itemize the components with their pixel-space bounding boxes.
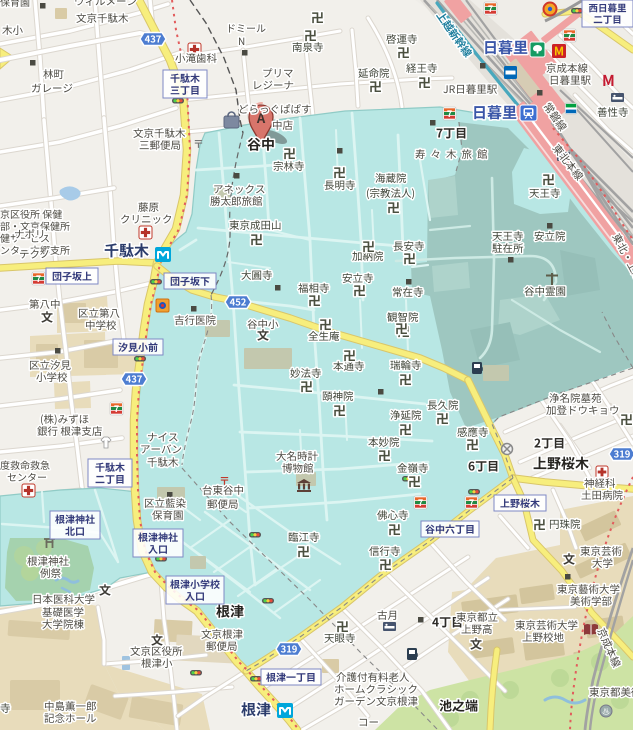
svg-text:319: 319 bbox=[614, 446, 631, 460]
svg-text:7: 7 bbox=[469, 496, 474, 509]
svg-text:三丁目: 三丁目 bbox=[170, 82, 200, 97]
svg-text:大学: 大学 bbox=[592, 556, 613, 571]
svg-text:円珠院: 円珠院 bbox=[549, 517, 581, 532]
svg-text:卍: 卍 bbox=[250, 229, 263, 248]
svg-text:レジーナ: レジーナ bbox=[252, 78, 294, 93]
svg-text:日暮里: 日暮里 bbox=[472, 102, 517, 123]
svg-text:クリニック: クリニック bbox=[120, 212, 173, 227]
svg-text:加登ドウキョウ: 加登ドウキョウ bbox=[546, 403, 620, 418]
svg-text:保育園: 保育園 bbox=[0, 0, 30, 9]
svg-text:台東谷中: 台東谷中 bbox=[202, 483, 244, 498]
svg-text:卍: 卍 bbox=[311, 7, 324, 26]
svg-text:卍: 卍 bbox=[418, 72, 431, 91]
svg-text:卍: 卍 bbox=[408, 471, 421, 490]
svg-text:谷中六丁目: 谷中六丁目 bbox=[425, 521, 475, 536]
svg-text:土田病院: 土田病院 bbox=[581, 488, 623, 503]
svg-text:卍: 卍 bbox=[333, 400, 346, 419]
svg-text:卍: 卍 bbox=[466, 434, 479, 453]
svg-text:卍: 卍 bbox=[395, 318, 408, 337]
svg-text:団子坂上: 団子坂上 bbox=[52, 268, 92, 283]
svg-text:卍: 卍 bbox=[387, 197, 400, 216]
svg-text:入口: 入口 bbox=[185, 588, 205, 603]
svg-text:卍: 卍 bbox=[533, 514, 546, 533]
svg-text:ガーデン文京根津: ガーデン文京根津 bbox=[334, 694, 418, 709]
svg-text:千駄木: 千駄木 bbox=[104, 240, 149, 261]
svg-text:大学院棟: 大学院棟 bbox=[42, 617, 84, 632]
svg-text:卍: 卍 bbox=[379, 554, 392, 573]
svg-text:入口: 入口 bbox=[148, 541, 168, 556]
svg-text:上野桜木: 上野桜木 bbox=[500, 495, 540, 510]
svg-text:古月: 古月 bbox=[377, 608, 398, 623]
svg-text:谷中: 谷中 bbox=[247, 134, 275, 154]
svg-text:文: 文 bbox=[99, 582, 111, 599]
svg-text:寿々木旅館: 寿々木旅館 bbox=[415, 147, 493, 162]
svg-text:日暮里駅: 日暮里駅 bbox=[549, 73, 591, 88]
svg-text:卍: 卍 bbox=[403, 248, 416, 267]
svg-text:安立院: 安立院 bbox=[534, 229, 566, 244]
svg-text:452: 452 bbox=[230, 294, 247, 308]
svg-text:卍: 卍 bbox=[399, 419, 412, 438]
svg-text:ナポリ: ナポリ bbox=[14, 227, 46, 242]
svg-text:二丁目: 二丁目 bbox=[95, 471, 125, 486]
svg-text:駐在所: 駐在所 bbox=[492, 241, 524, 256]
svg-text:小学校: 小学校 bbox=[36, 370, 68, 385]
svg-text:JR日暮里駅: JR日暮里駅 bbox=[443, 82, 498, 97]
svg-text:卍: 卍 bbox=[333, 162, 346, 181]
svg-text:どらっぐぱぱす: どらっぐぱぱす bbox=[238, 102, 312, 117]
svg-text:M: M bbox=[554, 43, 564, 60]
svg-text:文: 文 bbox=[257, 327, 269, 344]
svg-text:文: 文 bbox=[563, 551, 575, 568]
svg-text:2丁目: 2丁目 bbox=[534, 435, 565, 452]
svg-text:437: 437 bbox=[126, 371, 143, 385]
svg-text:卍: 卍 bbox=[620, 409, 633, 428]
svg-text:卍: 卍 bbox=[369, 76, 382, 95]
svg-text:卍: 卍 bbox=[336, 616, 349, 635]
svg-text:卍: 卍 bbox=[388, 519, 401, 538]
svg-text:汐見小前: 汐見小前 bbox=[118, 339, 158, 354]
svg-text:M: M bbox=[602, 70, 615, 91]
svg-text:海蔵院: 海蔵院 bbox=[375, 171, 407, 186]
svg-text:7: 7 bbox=[418, 496, 423, 509]
svg-text:木小: 木小 bbox=[2, 23, 23, 38]
svg-text:北口: 北口 bbox=[65, 523, 85, 538]
svg-text:ウィルメーン: ウィルメーン bbox=[74, 0, 137, 9]
svg-text:文京千駄木: 文京千駄木 bbox=[76, 11, 129, 26]
svg-text:千駄木: 千駄木 bbox=[147, 455, 179, 470]
svg-text:N: N bbox=[238, 33, 245, 48]
svg-text:郵便局: 郵便局 bbox=[207, 497, 239, 512]
svg-text:天王寺: 天王寺 bbox=[529, 186, 561, 201]
svg-text:保育園: 保育園 bbox=[152, 508, 184, 523]
svg-text:郵便局: 郵便局 bbox=[206, 639, 238, 654]
svg-text:437: 437 bbox=[145, 31, 162, 45]
svg-text:7: 7 bbox=[36, 272, 41, 285]
svg-text:大圓寺: 大圓寺 bbox=[241, 268, 273, 283]
svg-text:勝太郎旅館: 勝太郎旅館 bbox=[210, 194, 263, 209]
svg-text:例祭: 例祭 bbox=[40, 566, 61, 581]
svg-text:卍: 卍 bbox=[362, 236, 375, 255]
svg-text:卍: 卍 bbox=[397, 42, 410, 61]
svg-text:善性寺: 善性寺 bbox=[597, 105, 629, 120]
svg-text:卍: 卍 bbox=[378, 445, 391, 464]
svg-text:根津小: 根津小 bbox=[141, 656, 173, 671]
svg-text:♨: ♨ bbox=[602, 707, 610, 718]
svg-text:文: 文 bbox=[41, 309, 53, 326]
svg-text:中店: 中店 bbox=[272, 118, 293, 133]
svg-text:ドミール: ドミール bbox=[226, 20, 266, 35]
svg-text:7: 7 bbox=[114, 402, 119, 415]
svg-text:吉行医院: 吉行医院 bbox=[174, 313, 216, 328]
svg-text:卍: 卍 bbox=[353, 280, 366, 299]
svg-text:上野校地: 上野校地 bbox=[522, 630, 564, 645]
svg-text:東京都美術館: 東京都美術館 bbox=[589, 685, 633, 700]
svg-text:日暮里: 日暮里 bbox=[483, 37, 528, 58]
svg-text:文: 文 bbox=[151, 632, 163, 649]
svg-text:美術学部: 美術学部 bbox=[570, 594, 612, 609]
svg-text:卍: 卍 bbox=[283, 143, 296, 162]
svg-text:博物館: 博物館 bbox=[282, 461, 314, 476]
svg-text:卍: 卍 bbox=[304, 25, 317, 44]
svg-text:卍: 卍 bbox=[300, 376, 313, 395]
svg-text:7: 7 bbox=[488, 2, 493, 15]
svg-text:池之端: 池之端 bbox=[439, 695, 478, 714]
svg-text:7: 7 bbox=[447, 107, 452, 120]
svg-text:根津一丁目: 根津一丁目 bbox=[266, 669, 316, 684]
svg-text:〒: 〒 bbox=[193, 136, 204, 152]
svg-text:根津: 根津 bbox=[241, 699, 271, 720]
svg-text:中学校: 中学校 bbox=[85, 318, 117, 333]
svg-text:林町: 林町 bbox=[43, 67, 64, 82]
svg-text:記念ホール: 記念ホール bbox=[44, 711, 97, 726]
svg-text:銀行 根津支店: 銀行 根津支店 bbox=[37, 424, 102, 439]
svg-text:卍: 卍 bbox=[343, 345, 356, 364]
svg-text:卍: 卍 bbox=[542, 169, 555, 188]
svg-text:卍: 卍 bbox=[399, 369, 412, 388]
svg-text:三郵便局: 三郵便局 bbox=[139, 138, 181, 153]
svg-text:テクノ: テクノ bbox=[19, 247, 51, 262]
svg-text:小滝歯科: 小滝歯科 bbox=[175, 51, 217, 66]
svg-text:上野桜木: 上野桜木 bbox=[533, 453, 589, 473]
svg-text:卍: 卍 bbox=[436, 408, 449, 427]
svg-text:7丁目: 7丁目 bbox=[436, 125, 467, 142]
svg-text:コー: コー bbox=[358, 715, 379, 730]
svg-text:文: 文 bbox=[470, 636, 482, 653]
svg-text:6丁目: 6丁目 bbox=[468, 458, 499, 475]
svg-text:卍: 卍 bbox=[297, 541, 310, 560]
svg-text:団子坂下: 団子坂下 bbox=[170, 273, 210, 288]
svg-text:319: 319 bbox=[281, 641, 298, 655]
svg-text:常在寺: 常在寺 bbox=[392, 285, 424, 300]
svg-text:卍: 卍 bbox=[319, 314, 332, 333]
svg-text:センター: センター bbox=[7, 469, 47, 484]
svg-text:ガレージ: ガレージ bbox=[31, 81, 73, 96]
svg-text:二丁目: 二丁目 bbox=[593, 12, 622, 26]
svg-text:7: 7 bbox=[567, 29, 572, 42]
svg-text:寺: 寺 bbox=[0, 701, 11, 716]
svg-text:卍: 卍 bbox=[308, 290, 321, 309]
svg-text:谷中霊園: 谷中霊園 bbox=[524, 284, 566, 299]
